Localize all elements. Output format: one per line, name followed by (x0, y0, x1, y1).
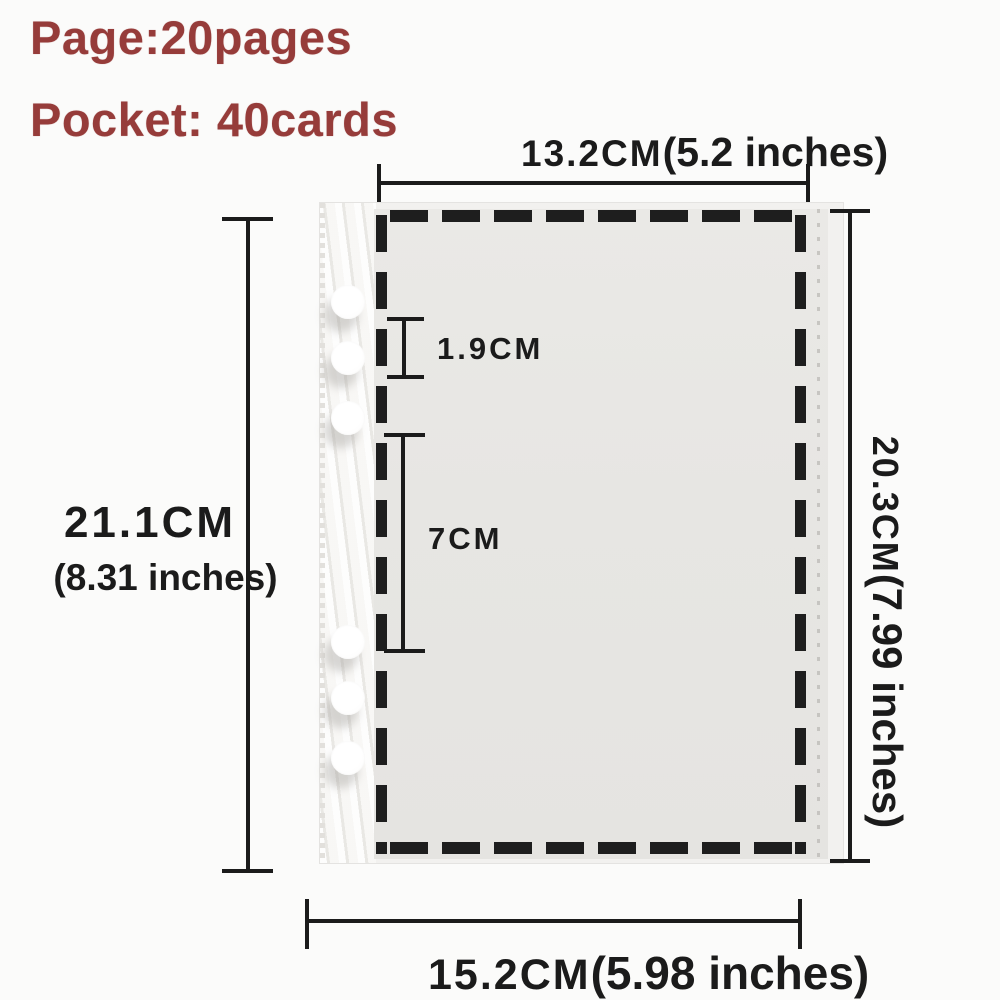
top-width-label: 13.2CM(5.2 inches) (521, 129, 888, 176)
page-count-text: Page:20pages (30, 10, 352, 65)
right-height-label: 20.3CM(7.99 inches) (865, 372, 911, 892)
bottom-width-tick-right (798, 899, 802, 949)
top-width-dimension-line (379, 181, 808, 185)
right-height-cm: 20.3CM (865, 436, 906, 574)
left-height-cm: 21.1CM (50, 498, 250, 548)
gap-tick-top (387, 317, 424, 321)
binder-hole (331, 741, 365, 775)
right-height-inches: (7.99 inches) (864, 574, 911, 828)
right-height-tick-bottom (830, 859, 870, 863)
section-dimension-line (401, 435, 405, 651)
top-width-tick-left (377, 164, 381, 202)
product-dimension-diagram: Page:20pages Pocket: 40cards 13.2C (0, 0, 1000, 1000)
right-height-dimension-line (848, 211, 852, 861)
pocket-dashed-border-bottom (376, 842, 806, 854)
binder-hole (331, 625, 365, 659)
left-height-inches: (8.31 inches) (38, 557, 293, 599)
pocket-dashed-border-right (795, 210, 806, 854)
pocket-dashed-border-top (376, 210, 806, 222)
bottom-width-cm: 15.2CM (428, 951, 591, 999)
top-width-cm: 13.2CM (521, 133, 663, 174)
section-tick-bottom (384, 649, 425, 653)
sleeve-right-seam (817, 209, 820, 857)
binder-hole (331, 341, 365, 375)
pocket-count-text: Pocket: 40cards (30, 92, 398, 147)
pocket-top-gap-label: 1.9CM (437, 331, 543, 367)
section-tick-top (384, 433, 425, 437)
sleeve-serrated-edge (320, 203, 325, 863)
binder-hole (331, 681, 365, 715)
bottom-width-tick-left (305, 899, 309, 949)
left-height-tick-top (222, 217, 273, 221)
binder-sleeve-image (320, 203, 843, 863)
bottom-width-inches: (5.98 inches) (591, 947, 870, 999)
gap-tick-bottom (387, 375, 424, 379)
bottom-width-dimension-line (307, 919, 800, 923)
pocket-section-height-label: 7CM (428, 521, 502, 557)
pocket-dashed-border-left (376, 210, 387, 854)
left-height-tick-bottom (222, 869, 273, 873)
top-width-inches: (5.2 inches) (663, 129, 889, 175)
bottom-width-label: 15.2CM(5.98 inches) (428, 946, 869, 1000)
binder-hole (331, 285, 365, 319)
right-height-tick-top (830, 209, 870, 213)
gap-dimension-line (402, 319, 406, 379)
binder-hole (331, 401, 365, 435)
